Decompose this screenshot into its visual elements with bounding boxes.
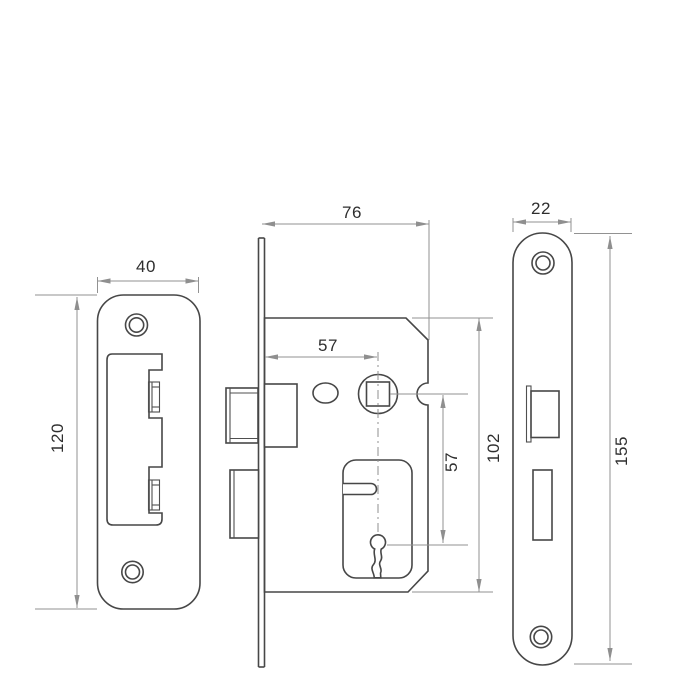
dim-strike-plate-height: 120 — [35, 295, 97, 609]
dim-strike-plate-width: 40 — [98, 257, 199, 293]
dim-label-40: 40 — [136, 257, 156, 276]
dim-faceplate-height: 155 — [574, 234, 632, 665]
dim-label-57-centres: 57 — [442, 452, 461, 472]
dim-label-22: 22 — [531, 199, 551, 218]
faceplate-front-view — [513, 233, 572, 665]
strike-plate-front-view — [98, 295, 201, 609]
dim-label-155: 155 — [612, 436, 631, 466]
dim-label-120: 120 — [48, 423, 67, 453]
technical-drawing: 40 120 76 57 57 102 — [0, 0, 700, 700]
dim-label-76: 76 — [342, 203, 362, 222]
lock-case-side-view — [226, 238, 428, 667]
faceplate-edge-view — [259, 238, 265, 667]
drawing-svg: 40 120 76 57 57 102 — [0, 0, 700, 700]
faceplate-outline — [513, 233, 572, 665]
dim-label-102: 102 — [484, 433, 503, 463]
lever-tab — [343, 484, 377, 495]
dim-label-57-backset: 57 — [318, 336, 338, 355]
deadbolt — [230, 470, 259, 538]
strike-plate-outline — [98, 295, 201, 609]
latch-head — [226, 388, 258, 443]
latch-tail — [265, 384, 298, 447]
dim-faceplate-width: 22 — [513, 199, 571, 232]
latch-bolt — [226, 384, 297, 447]
